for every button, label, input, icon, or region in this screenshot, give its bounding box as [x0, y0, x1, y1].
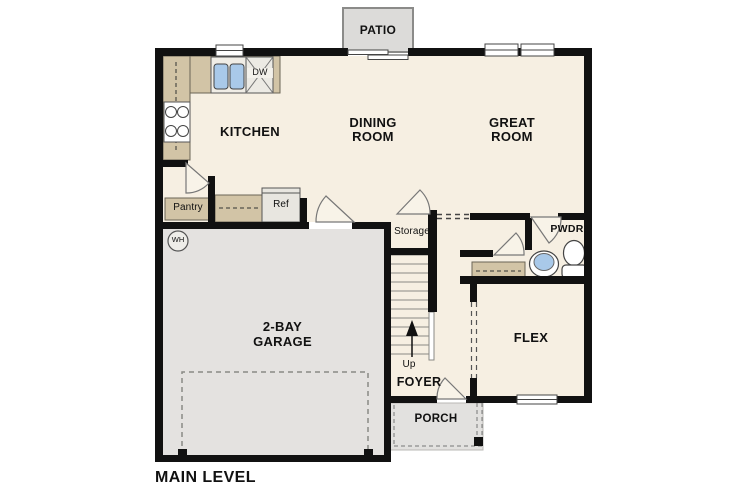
sink-basin-left [214, 64, 228, 89]
wall-hall-top-b [558, 213, 584, 220]
label-pantry: Pantry [163, 203, 213, 214]
wall-flex-top [460, 276, 592, 284]
wall-bottom-a [384, 396, 437, 403]
label-powder-room: PWDR [544, 224, 590, 235]
label-great-room: GREAT ROOM [481, 116, 543, 144]
label-patio: PATIO [343, 24, 413, 37]
wall-garage-bottom [155, 455, 391, 462]
label-dining-room: DINING ROOM [342, 116, 404, 144]
wall-ref-right [300, 198, 307, 222]
wall-pwdr-left [525, 218, 532, 250]
wall-garage-top-a [163, 222, 309, 229]
label-storage: Storage [390, 227, 434, 238]
wall-pantry-top [163, 160, 188, 167]
wall-storage-divider [391, 248, 432, 255]
label-flex-room: FLEX [496, 331, 566, 345]
label-refrigerator: Ref [262, 200, 300, 211]
label-foyer: FOYER [388, 376, 450, 390]
garage-post-left [178, 449, 187, 458]
sink-basin [534, 254, 554, 271]
wall-flex-left-stub-top [470, 284, 477, 302]
wall-hall-top-a [470, 213, 530, 220]
wall-bottom-b [466, 396, 518, 403]
toilet-bowl [564, 241, 585, 266]
label-porch: PORCH [400, 413, 472, 425]
wall-left [155, 48, 163, 462]
label-dishwasher: DW [247, 68, 273, 78]
plan-title: MAIN LEVEL [155, 469, 315, 486]
floor-plan-graphic [0, 0, 750, 500]
wall-center-vertical [384, 222, 391, 462]
wall-closet-front [460, 250, 493, 257]
stair-rail [429, 312, 434, 360]
porch-slab [390, 403, 483, 450]
wall-flex-left-stub-bottom [470, 378, 477, 396]
patio-slider-panel-2 [368, 55, 408, 60]
sink-basin-right [230, 64, 244, 89]
label-garage: 2-BAY GARAGE [240, 319, 325, 349]
patio-slider-panel-1 [348, 50, 388, 55]
garage-post-right [364, 449, 373, 458]
wall-bottom-c [556, 396, 592, 403]
wall-top-left [155, 48, 348, 56]
label-stairs-up: Up [395, 360, 423, 371]
label-kitchen: KITCHEN [205, 125, 295, 139]
floor-plan: PATIO KITCHEN DINING ROOM GREAT ROOM Pan… [0, 0, 750, 500]
label-water-heater: WH [166, 236, 190, 244]
porch-post [474, 437, 483, 446]
closet-shelf [472, 262, 525, 278]
